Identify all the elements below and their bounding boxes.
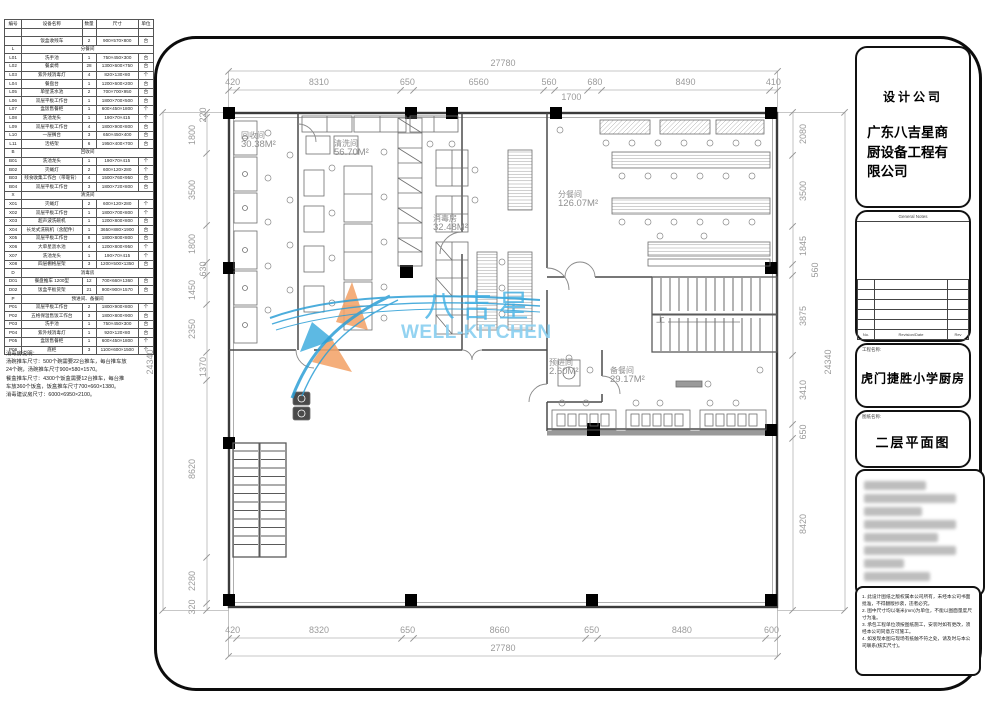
project-name: 虎门捷胜小学厨房 bbox=[857, 369, 969, 386]
dim-label: 8320 bbox=[309, 625, 329, 635]
dim-label: 1370 bbox=[198, 357, 208, 377]
table-row: D01餐盘推车 1200型12700×660×1360台 bbox=[5, 277, 154, 286]
table-row: L02餐桌椅281300×600×750台 bbox=[5, 62, 154, 71]
room-label-pantry: 备餐间29.17M² bbox=[610, 366, 645, 386]
table-row: P02五格保温售饭工作台31800×800×900台 bbox=[5, 312, 154, 321]
room-label-pre-entry: 预进间2.60M² bbox=[549, 358, 579, 378]
dim-label: 410 bbox=[766, 77, 781, 87]
table-row: D02饭盒平板货架21900×900×1570台 bbox=[5, 286, 154, 295]
table-row: P05盒饭售餐柜1600×450×1800个 bbox=[5, 337, 154, 346]
equipment-schedule-table: 编号设备名称数量尺寸单位 饭盒收残车2900×570×800台L分餐间L01洗手… bbox=[4, 19, 154, 355]
notes-box: 1. 此设计图纸之版权属本公司所有，未经本公司书面批准，不得翻版抄袭，违者必究。… bbox=[855, 586, 981, 676]
table-row: L01洗手池1750×450×300台 bbox=[5, 54, 154, 63]
table-row: X08四层棚格层架31200×500×1350台 bbox=[5, 260, 154, 269]
table-row: X01灭蝇灯2600×120×280个 bbox=[5, 200, 154, 209]
dim-label: 1800 bbox=[187, 125, 197, 145]
dim-label: 8620 bbox=[187, 459, 197, 479]
table-row: L11活络架61950×400×700台 bbox=[5, 140, 154, 149]
dim-label: 560 bbox=[810, 263, 820, 278]
note-line: 24个碗，汤碗推车尺寸900×580×1570。 bbox=[6, 366, 154, 374]
watermark-chinese: 八吉星 bbox=[424, 281, 535, 326]
dim-label: 1800 bbox=[187, 234, 197, 254]
table-row: B02灭蝇灯2600×120×280个 bbox=[5, 166, 154, 175]
table-row: 饭盒收残车2900×570×800台 bbox=[5, 37, 154, 46]
note-line: 消毒建议房尺寸：6000×6950×2100。 bbox=[6, 391, 154, 399]
table-section-row: X清洗间 bbox=[5, 191, 154, 200]
table-row: B03残食收集工作台（带靠背）41500×760×950台 bbox=[5, 174, 154, 183]
dim-label: 420 bbox=[225, 625, 240, 635]
dim-label: 560 bbox=[542, 77, 557, 87]
table-row: X05双层平板工作台81800×800×800台 bbox=[5, 234, 154, 243]
dim-label: 650 bbox=[584, 625, 599, 635]
table-header-cell: 数量 bbox=[82, 20, 96, 29]
table-row: L09双层平板工作台41800×900×800台 bbox=[5, 123, 154, 132]
table-row: X07洗池龙头1190×70×415个 bbox=[5, 252, 154, 261]
titleblock-note-line: 2. 图中尺寸均以毫米(mm)为单位，不能以图面量度尺寸为准。 bbox=[862, 607, 974, 621]
dim-label: 3500 bbox=[798, 181, 808, 201]
room-label-serving: 分餐间126.07M² bbox=[558, 190, 598, 210]
cad-drawing-sheet: 编号设备名称数量尺寸单位 饭盒收残车2900×570×800台L分餐间L01洗手… bbox=[0, 0, 1000, 725]
rev-label: Rev bbox=[948, 330, 969, 340]
dim-label: 3410 bbox=[798, 380, 808, 400]
dim-label: 8310 bbox=[309, 77, 329, 87]
note-line: 消毒房说明： bbox=[6, 350, 154, 358]
titleblock-note-line: 4. 如发现本图与现场有抵触不符之处，请及时与本公司联系(核实尺寸)。 bbox=[862, 635, 974, 649]
table-row: L06双层平板工作台11800×700×500台 bbox=[5, 97, 154, 106]
table-row: L04餐盘台11200×600×200台 bbox=[5, 80, 154, 89]
project-name-label: 工程名称: bbox=[862, 347, 881, 353]
table-row: P03洗手池1750×450×300台 bbox=[5, 320, 154, 329]
dim-label: 1450 bbox=[187, 280, 197, 300]
table-header-cell: 尺寸 bbox=[96, 20, 138, 29]
general-notes-label: General Notes bbox=[857, 212, 969, 222]
table-header-cell: 设备名称 bbox=[22, 20, 82, 29]
blurred-info-box bbox=[855, 469, 985, 597]
dim-label: 420 bbox=[225, 77, 240, 87]
table-row bbox=[5, 28, 154, 37]
table-section-row: B回收间 bbox=[5, 148, 154, 157]
revision-table: No. Revision/Date Rev bbox=[857, 279, 969, 340]
dim-label: 680 bbox=[587, 77, 602, 87]
dim-label: 1700 bbox=[561, 92, 581, 102]
titleblock-note-line: 1. 此设计图纸之版权属本公司所有，未经本公司书面批准，不得翻版抄袭，违者必究。 bbox=[862, 593, 974, 607]
drawing-name: 二层平面图 bbox=[857, 432, 969, 451]
note-line: 餐盒推车尺寸：4300个饭盒需要12台推车，每台推 bbox=[6, 375, 154, 383]
dim-label: 27780 bbox=[490, 58, 515, 68]
titleblock-note-line: 3. 承包工程单位须按图纸施工，安装时如有更改，须经本公司同意方可施工。 bbox=[862, 621, 974, 635]
dim-label: 600 bbox=[764, 625, 779, 635]
table-row: P04紫外线消毒灯1920×120×80台 bbox=[5, 329, 154, 338]
watermark-english: WELL-KITCHEN bbox=[401, 322, 552, 344]
rev-no-label: No. bbox=[858, 330, 875, 340]
project-name-box: 工程名称: 虎门捷胜小学厨房 bbox=[855, 343, 971, 408]
dim-label: 8420 bbox=[798, 514, 808, 534]
table-section-row: P预进间、备餐间 bbox=[5, 295, 154, 304]
dim-label: 2350 bbox=[187, 319, 197, 339]
dim-label: 2080 bbox=[798, 124, 808, 144]
table-row: P01双层平板工作台21800×900×800个 bbox=[5, 303, 154, 312]
dim-label: 24340 bbox=[823, 349, 833, 374]
dim-label: 8660 bbox=[490, 625, 510, 635]
table-header-cell: 编号 bbox=[5, 20, 22, 29]
table-section-row: D消毒房 bbox=[5, 269, 154, 278]
dim-label: 650 bbox=[400, 77, 415, 87]
dim-label: 27780 bbox=[490, 643, 515, 653]
room-label-washing: 清洗间56.70M² bbox=[334, 139, 369, 159]
dim-label: 1845 bbox=[798, 236, 808, 256]
table-row: L08洗池龙头1190×70×415个 bbox=[5, 114, 154, 123]
room-label-disinfection: 消毒房32.48M² bbox=[433, 214, 468, 234]
dim-label: 3875 bbox=[798, 306, 808, 326]
design-company-box: 设计公司 广东八吉星商厨设备工程有限公司 bbox=[855, 46, 971, 208]
table-row: B04双层平板工作台31800×720×800台 bbox=[5, 183, 154, 192]
note-line: 汤碗推车尺寸：500个碗需要22台推车，每台推车放 bbox=[6, 358, 154, 366]
company-name: 广东八吉星商厨设备工程有限公司 bbox=[867, 123, 953, 182]
design-company-label: 设计公司 bbox=[857, 88, 969, 105]
rev-date-label: Revision/Date bbox=[875, 330, 948, 340]
room-label-recycling: 回收间30.38M² bbox=[241, 131, 276, 151]
dim-label: 8490 bbox=[675, 77, 695, 87]
disinfection-note: 消毒房说明：汤碗推车尺寸：500个碗需要22台推车，每台推车放24个碗，汤碗推车… bbox=[6, 350, 154, 399]
dim-label: 24340 bbox=[145, 349, 155, 374]
table-row: L03紫外线消毒灯4820×130×80个 bbox=[5, 71, 154, 80]
dim-label: 2280 bbox=[187, 571, 197, 591]
table-row: X02双层平板工作台11800×700×800个 bbox=[5, 209, 154, 218]
general-notes-box: General Notes No. Revision/Date Rev bbox=[855, 210, 971, 342]
table-row: L07盒饭售餐柜1600×450×1800个 bbox=[5, 105, 154, 114]
dim-label: 650 bbox=[798, 424, 808, 439]
dim-label: 6560 bbox=[469, 77, 489, 87]
dim-label: 320 bbox=[187, 600, 197, 615]
dim-label: 8480 bbox=[672, 625, 692, 635]
drawing-name-label: 图纸名称: bbox=[862, 414, 881, 420]
table-row: X06大单星沥水池41200×800×950个 bbox=[5, 243, 154, 252]
drawing-name-box: 图纸名称: 二层平面图 bbox=[855, 410, 971, 468]
note-line: 车放360个饭盒，饭盒推车尺寸700×660×1380。 bbox=[6, 383, 154, 391]
table-row: X03超声波洗碗机11200×800×800台 bbox=[5, 217, 154, 226]
stair-up-label: 上 bbox=[656, 312, 665, 325]
table-row: B01洗池龙头1190×70×415个 bbox=[5, 157, 154, 166]
table-row: L05单星洗水池2700×700×950台 bbox=[5, 88, 154, 97]
dim-label: 650 bbox=[400, 625, 415, 635]
table-section-row: L分餐间 bbox=[5, 45, 154, 54]
table-row: X04长龙式洗碗机（含配件）13650×880×1900台 bbox=[5, 226, 154, 235]
dim-label: 3500 bbox=[187, 180, 197, 200]
table-header-row: 编号设备名称数量尺寸单位 bbox=[5, 20, 154, 29]
table-header-cell: 单位 bbox=[138, 20, 153, 29]
table-row: L10一层搁台3650×450×400台 bbox=[5, 131, 154, 140]
